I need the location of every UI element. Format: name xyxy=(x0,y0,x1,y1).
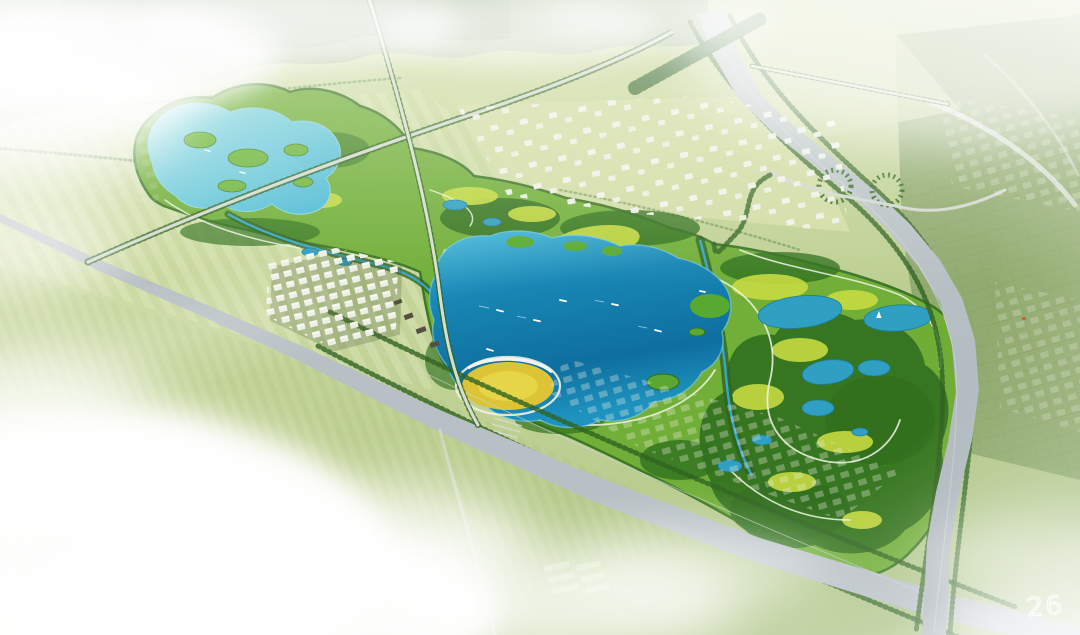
aerial-rendering-canvas: 26 xyxy=(0,0,1080,635)
aerial-rendering-stage: 26 xyxy=(0,0,1080,635)
page-number-watermark: 26 xyxy=(1026,591,1065,624)
atmosphere xyxy=(0,0,1080,635)
